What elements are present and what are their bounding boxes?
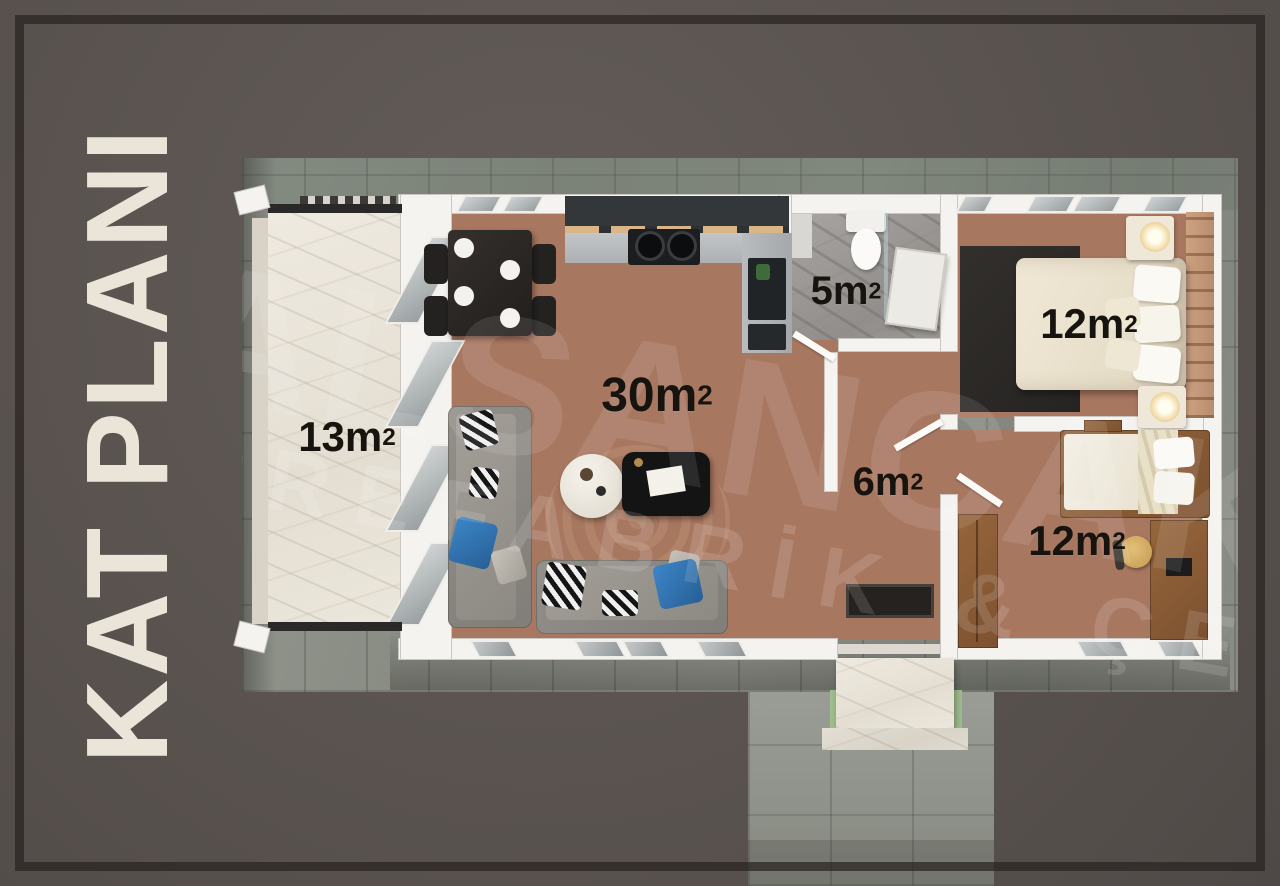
window-icon <box>1078 642 1127 656</box>
window-icon <box>576 642 623 656</box>
window-icon <box>698 642 745 656</box>
room-area-label-living: 30m2 <box>601 372 713 420</box>
desk <box>1150 520 1208 640</box>
stove-burner-icon <box>638 234 662 258</box>
room-area-label-hall: 6m2 <box>853 462 924 502</box>
table-decor-icon <box>596 486 606 496</box>
pillow <box>652 558 704 610</box>
bedroom-wall-lower <box>940 494 958 660</box>
room-area-label-bedroom2: 12m2 <box>1028 520 1126 562</box>
window-icon <box>624 642 667 656</box>
round-coffee-table <box>560 454 624 518</box>
bed-pillow <box>1133 264 1182 304</box>
page-title: KAT PLANI <box>60 126 194 763</box>
kitchen-upper-cabinets <box>565 196 789 230</box>
room-area-label-terrace: 13m2 <box>298 416 396 458</box>
plate-icon <box>500 260 520 280</box>
wardrobe <box>958 514 998 648</box>
lamp-icon <box>1150 392 1180 422</box>
entrance-threshold <box>838 644 950 654</box>
doormat <box>846 584 934 618</box>
pillow <box>602 590 638 616</box>
dining-chair <box>424 296 448 336</box>
bathroom-sink <box>792 214 812 258</box>
plate-icon <box>500 308 520 328</box>
entrance-step-lower <box>822 728 968 750</box>
entrance-step <box>836 658 954 728</box>
window-icon <box>472 642 515 656</box>
hall-wall-left <box>824 352 838 492</box>
stove-burner-icon <box>670 234 694 258</box>
terrace-rail-bottom <box>268 622 402 631</box>
terrace-rail-top <box>268 204 402 213</box>
wardrobe-seam <box>976 520 978 642</box>
microwave <box>748 324 786 350</box>
dining-chair <box>532 244 556 284</box>
walkway-bottom-shade <box>748 840 994 886</box>
table-decor-icon <box>580 468 593 481</box>
room-area-label-bathroom: 5m2 <box>811 271 882 311</box>
plate-icon <box>454 286 474 306</box>
bed-pillow <box>1153 436 1195 469</box>
laptop-icon <box>1166 558 1192 576</box>
shower-tray <box>885 247 947 331</box>
plant-icon <box>756 264 770 280</box>
bed-headboard-panel <box>1186 212 1214 418</box>
table-decor-icon <box>634 458 643 467</box>
toilet <box>851 228 881 270</box>
window-icon <box>1028 197 1073 211</box>
window-icon <box>1074 197 1119 211</box>
floor-plan-poster: KAT PLANI <box>0 0 1280 886</box>
room-area-label-bedroom1: 12m2 <box>1040 303 1138 345</box>
shelf <box>1084 420 1122 432</box>
bed-pillow <box>1153 471 1195 506</box>
window-icon <box>1158 642 1199 656</box>
lamp-icon <box>1140 222 1170 252</box>
book-icon <box>646 465 686 496</box>
pillow <box>541 561 587 611</box>
dining-chair <box>424 244 448 284</box>
plate-icon <box>454 238 474 258</box>
pillow <box>468 466 500 500</box>
dining-chair <box>532 296 556 336</box>
